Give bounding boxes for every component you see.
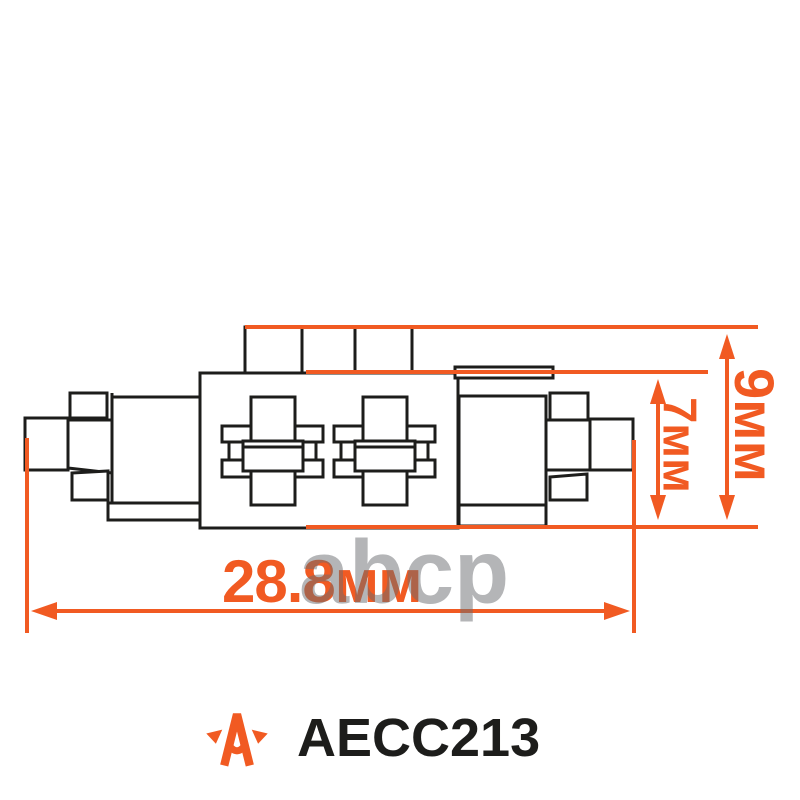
outer-height-arrow-head-bottom [719,495,735,520]
part-number: AECC213 [297,711,540,765]
top-tab-2 [302,327,355,373]
left-big-block [112,397,200,503]
brand-row: AECC213 [205,707,540,769]
left-top-tab [70,393,107,418]
width-arrow-head-right [604,602,630,620]
left-tip-block [25,418,68,470]
top-tab-3 [355,327,412,373]
dimension-body-height-label: 7мм [657,397,704,493]
right-bottom-tab [550,474,587,500]
dimension-overall-height-label: 9мм [726,368,782,482]
product-image: 28.8мм 7мм 9мм abcp AECC213 [0,0,800,800]
left-bottom-tab [72,471,108,500]
left-trapezoid [68,420,112,473]
watermark: abcp [299,528,509,618]
right-top-tab [550,393,588,420]
right-trapezoid [546,420,590,470]
outer-height-arrow-head-top [719,334,735,359]
width-arrow-head-left [31,602,57,620]
right-big-block [459,396,546,505]
inner-height-arrow-head-bottom [650,495,666,520]
left-bottom-lip [108,503,200,520]
top-tab-1 [245,327,302,373]
star-a-icon [205,707,269,769]
right-tip-block [590,419,633,470]
